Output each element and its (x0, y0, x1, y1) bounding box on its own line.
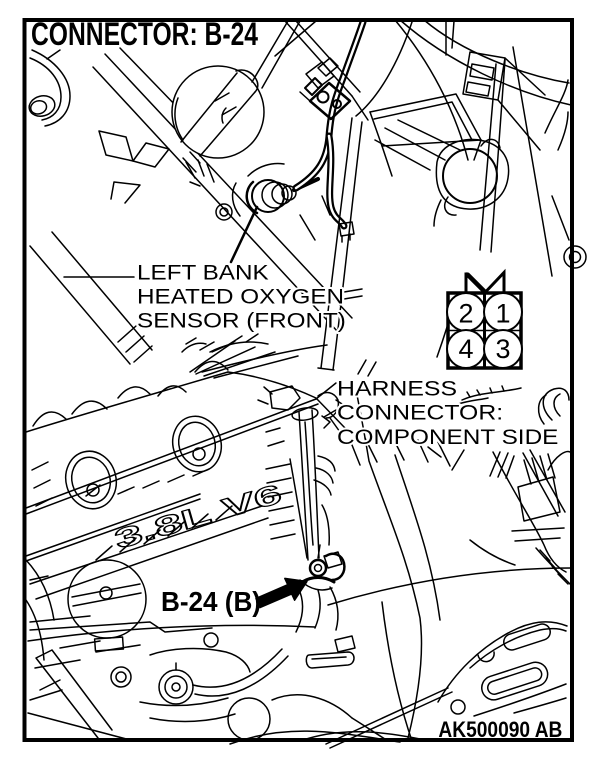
svg-text:SENSOR (FRONT): SENSOR (FRONT) (137, 308, 346, 332)
svg-text:2: 2 (458, 299, 473, 329)
svg-text:LEFT BANK: LEFT BANK (137, 260, 269, 284)
svg-text:4: 4 (458, 334, 473, 364)
svg-text:HARNESS: HARNESS (337, 376, 457, 400)
svg-text:AK500090 AB: AK500090 AB (438, 717, 562, 742)
svg-text:1: 1 (495, 299, 510, 329)
svg-text:B-24 (B): B-24 (B) (161, 586, 261, 617)
svg-text:CONNECTOR: B-24: CONNECTOR: B-24 (31, 16, 258, 52)
svg-text:HEATED OXYGEN: HEATED OXYGEN (137, 284, 344, 308)
svg-text:CONNECTOR:: CONNECTOR: (337, 400, 503, 424)
svg-text:COMPONENT SIDE: COMPONENT SIDE (337, 424, 558, 448)
svg-text:3: 3 (495, 334, 510, 364)
